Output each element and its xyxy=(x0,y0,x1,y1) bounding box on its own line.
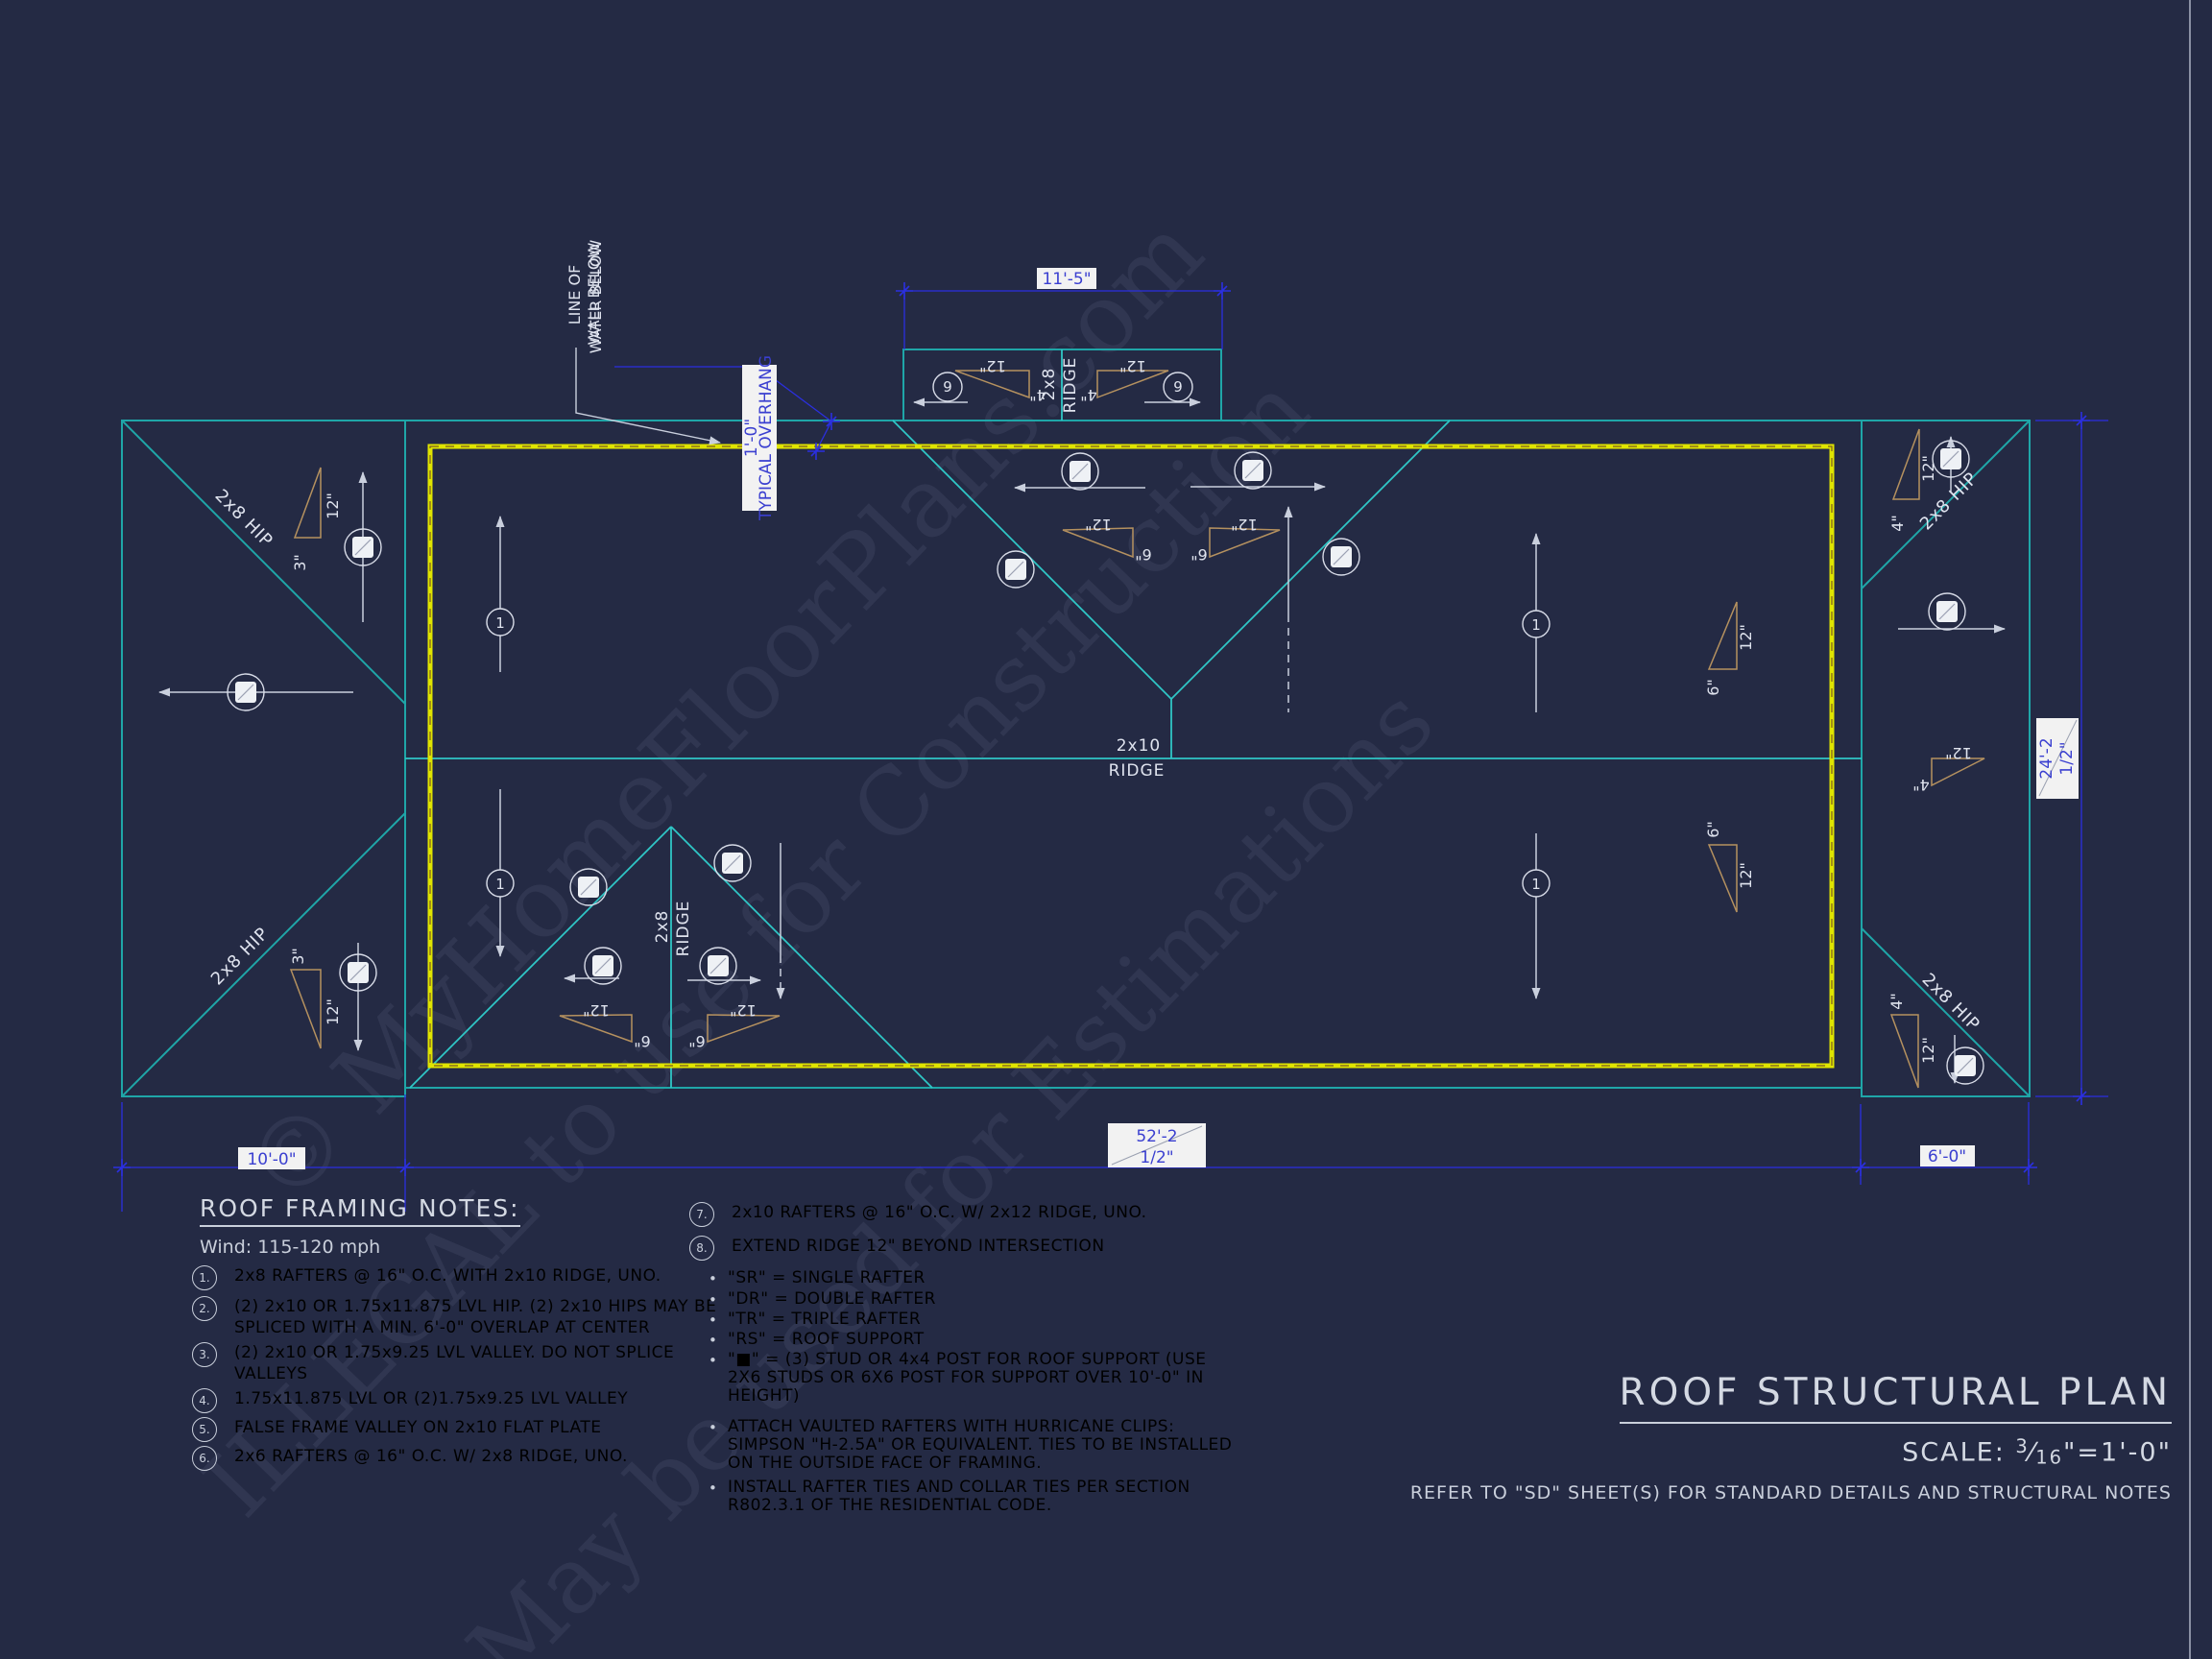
slope-12: 12" xyxy=(730,1001,757,1020)
legend-text: "TR" = TRIPLE RAFTER xyxy=(728,1310,921,1329)
main-ridge-word: RIDGE xyxy=(1109,761,1166,781)
note-text: 2x10 RAFTERS @ 16" O.C. W/ 2x12 RIDGE, U… xyxy=(732,1202,1147,1223)
marker-1: 1 xyxy=(1531,616,1541,634)
note-number: 4. xyxy=(192,1388,217,1413)
dim-bottom-left: 10'-0" xyxy=(247,1150,296,1169)
note-number: 6. xyxy=(192,1446,217,1471)
slope-12: 12" xyxy=(583,1001,610,1020)
note-text: 2x8 RAFTERS @ 16" O.C. WITH 2x10 RIDGE, … xyxy=(234,1265,661,1286)
marker-6: 6 xyxy=(1173,377,1183,395)
notes-title: ROOF FRAMING NOTES: xyxy=(200,1194,520,1227)
legend-text: "■" = (3) STUD OR 4x4 POST FOR ROOF SUPP… xyxy=(728,1351,1206,1406)
overhang-label: TYPICAL OVERHANG xyxy=(757,355,776,521)
slope-6: 6" xyxy=(1704,821,1722,838)
dim-bottom-main-1: 52'-2 xyxy=(1136,1127,1177,1146)
slope-12: 12" xyxy=(1945,744,1972,762)
slope-4: 4" xyxy=(1912,776,1930,794)
legend-text: "SR" = SINGLE RAFTER xyxy=(728,1269,926,1287)
slope-12: 12" xyxy=(1737,624,1755,651)
note-number: 2. xyxy=(192,1296,217,1321)
blueprint-sheet: © MyHomeFloorPlans.com ILLEGAL to use fo… xyxy=(0,0,2212,1659)
marker-1: 1 xyxy=(495,876,505,893)
bullet-icon: • xyxy=(709,1419,728,1436)
bullet-icon: • xyxy=(709,1479,728,1497)
roof-framing-notes: ROOF FRAMING NOTES: Wind: 115-120 mph xyxy=(200,1194,737,1258)
note-number: 8. xyxy=(689,1236,714,1261)
slope-12: 12" xyxy=(1919,1037,1937,1064)
slope-12: 12" xyxy=(324,493,342,519)
slope-6: 6" xyxy=(1190,545,1208,564)
bullet-icon: • xyxy=(709,1311,728,1329)
hip-label-lower-right: 2x8 HIP xyxy=(1918,970,1984,1036)
note-number: 1. xyxy=(192,1265,217,1290)
dormer-ridge-size: 2x8 xyxy=(1040,368,1059,401)
legend-rs: •"RS" = ROOF SUPPORT xyxy=(709,1331,1304,1349)
legend-post: •"■" = (3) STUD OR 4x4 POST FOR ROOF SUP… xyxy=(709,1351,1304,1406)
bullet-icon: • xyxy=(709,1332,728,1349)
wind-note: Wind: 115-120 mph xyxy=(200,1237,737,1258)
line-of-label: LINE OF xyxy=(565,265,584,325)
bullet-icon: • xyxy=(709,1291,728,1309)
slope-6: 6" xyxy=(1704,679,1722,696)
note-item-3: 3.(2) 2x10 OR 1.75x9.25 LVL VALLEY. DO N… xyxy=(192,1342,730,1384)
scale-numerator: 3 xyxy=(2015,1435,2029,1457)
scale-label: SCALE: xyxy=(1902,1438,2006,1468)
marker-1: 1 xyxy=(495,614,505,632)
note-hurricane-clips: •ATTACH VAULTED RAFTERS WITH HURRICANE C… xyxy=(709,1418,1304,1473)
slope-12: 12" xyxy=(1119,357,1146,375)
slope-12: 12" xyxy=(979,357,1006,375)
dim-bottom-right: 6'-0" xyxy=(1928,1147,1966,1166)
scale-denominator: 16 xyxy=(2035,1447,2063,1469)
slope-12: 12" xyxy=(1737,862,1755,889)
legend-text: ATTACH VAULTED RAFTERS WITH HURRICANE CL… xyxy=(728,1418,1232,1473)
note-item-1: 1.2x8 RAFTERS @ 16" O.C. WITH 2x10 RIDGE… xyxy=(192,1265,730,1290)
title-block: ROOF STRUCTURAL PLAN SCALE: 3⁄16"=1'-0" … xyxy=(1410,1371,2172,1503)
dormer-ridge-word: RIDGE xyxy=(1061,357,1080,414)
note-text: (2) 2x10 OR 1.75x9.25 LVL VALLEY. DO NOT… xyxy=(234,1342,674,1384)
sheet-title: ROOF STRUCTURAL PLAN xyxy=(1620,1371,2172,1424)
note-item-7: 7.2x10 RAFTERS @ 16" O.C. W/ 2x12 RIDGE,… xyxy=(689,1202,1285,1227)
legend-sr: •"SR" = SINGLE RAFTER xyxy=(709,1269,1304,1287)
water-below-label: WATER BELOW xyxy=(587,240,605,354)
note-text: FALSE FRAME VALLEY ON 2x10 FLAT PLATE xyxy=(234,1417,601,1438)
note-item-6: 6.2x6 RAFTERS @ 16" O.C. W/ 2x8 RIDGE, U… xyxy=(192,1446,730,1471)
slope-12: 12" xyxy=(1919,455,1937,482)
legend-text: "RS" = ROOF SUPPORT xyxy=(728,1331,925,1349)
slope-4: 4" xyxy=(1888,515,1907,532)
note-text: EXTEND RIDGE 12" BEYOND INTERSECTION xyxy=(732,1236,1105,1257)
bullet-icon: • xyxy=(709,1352,728,1369)
slope-4: 4" xyxy=(1887,993,1906,1010)
slope-6: 6" xyxy=(688,1032,706,1050)
line-of-wall-leader: LINE OF WALL BELOW WATER BELOW xyxy=(565,240,720,443)
legend-text: "DR" = DOUBLE RAFTER xyxy=(728,1290,936,1309)
marker-6: 6 xyxy=(943,377,952,395)
dim-bottom-main-2: 1/2" xyxy=(1140,1148,1173,1167)
note-text: (2) 2x10 OR 1.75x11.875 LVL HIP. (2) 2x1… xyxy=(234,1296,716,1338)
slope-12: 12" xyxy=(1085,516,1112,534)
main-ridge-size: 2x10 xyxy=(1117,736,1162,756)
note-item-2: 2.(2) 2x10 OR 1.75x11.875 LVL HIP. (2) 2… xyxy=(192,1296,730,1338)
note-text: 2x6 RAFTERS @ 16" O.C. W/ 2x8 RIDGE, UNO… xyxy=(234,1446,628,1467)
slope-3: 3" xyxy=(289,948,307,965)
dim-right-1: 24'-2 xyxy=(2037,737,2056,779)
dim-top: 11'-5" xyxy=(1042,270,1091,289)
legend-text: INSTALL RAFTER TIES AND COLLAR TIES PER … xyxy=(728,1479,1190,1515)
slope-6: 6" xyxy=(1135,545,1152,564)
marker-1: 1 xyxy=(1531,876,1541,893)
hip-line-lower-right xyxy=(1862,928,2030,1096)
note-text: 1.75x11.875 LVL OR (2)1.75x9.25 LVL VALL… xyxy=(234,1388,628,1409)
dim-right-2: 1/2" xyxy=(2057,741,2077,775)
slope-12: 12" xyxy=(1231,516,1258,534)
note-number: 5. xyxy=(192,1417,217,1442)
gable-ridge-size: 2x8 xyxy=(653,910,672,944)
slope-12: 12" xyxy=(324,998,342,1025)
note-number: 7. xyxy=(689,1202,714,1227)
scale-suffix: "=1'-0" xyxy=(2063,1438,2172,1468)
note-item-8: 8.EXTEND RIDGE 12" BEYOND INTERSECTION xyxy=(689,1236,1285,1261)
legend-tr: •"TR" = TRIPLE RAFTER xyxy=(709,1310,1304,1329)
gable-ridge-word: RIDGE xyxy=(674,901,693,957)
legend-dr: •"DR" = DOUBLE RAFTER xyxy=(709,1290,1304,1309)
bullet-icon: • xyxy=(709,1270,728,1287)
note-number: 3. xyxy=(192,1342,217,1367)
slope-4: 4" xyxy=(1080,386,1097,404)
slope-3: 3" xyxy=(291,554,309,571)
note-item-5: 5.FALSE FRAME VALLEY ON 2x10 FLAT PLATE xyxy=(192,1417,730,1442)
note-item-4: 4.1.75x11.875 LVL OR (2)1.75x9.25 LVL VA… xyxy=(192,1388,730,1413)
note-rafter-ties: •INSTALL RAFTER TIES AND COLLAR TIES PER… xyxy=(709,1479,1304,1515)
sheet-scale: SCALE: 3⁄16"=1'-0" xyxy=(1410,1435,2172,1469)
refer-note: REFER TO "SD" SHEET(S) FOR STANDARD DETA… xyxy=(1410,1482,2172,1503)
slope-6: 6" xyxy=(634,1032,651,1050)
